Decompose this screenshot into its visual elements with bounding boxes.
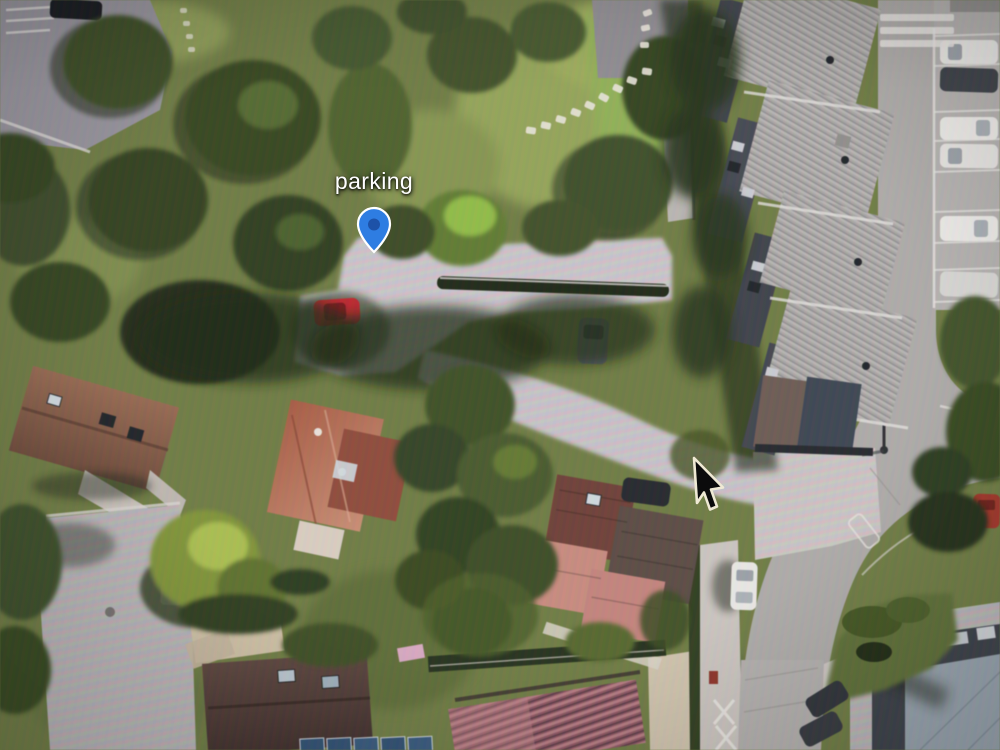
satellite-map[interactable]: parking: [0, 0, 1000, 750]
map-label-parking[interactable]: parking: [329, 168, 419, 195]
parked-car-dark-topleft: [50, 0, 103, 20]
cursor-arrow: [694, 458, 723, 510]
aerial-imagery: [0, 0, 1000, 750]
crosswalk: [880, 14, 954, 47]
map-pin-dot: [368, 219, 380, 231]
white-car-road: [730, 562, 758, 611]
red-sign: [709, 671, 718, 684]
mouse-cursor: [688, 453, 732, 515]
map-pin[interactable]: [356, 206, 392, 256]
